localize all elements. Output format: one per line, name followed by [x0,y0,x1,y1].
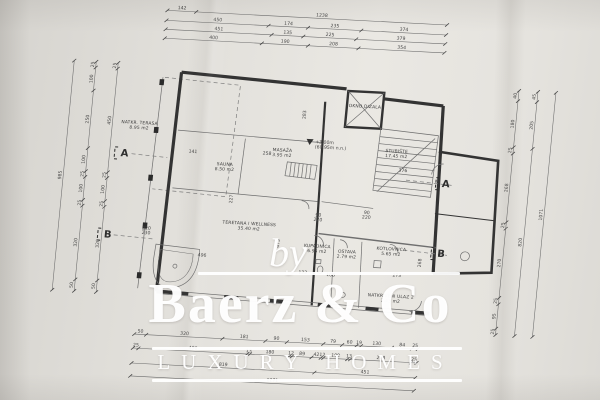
dimension-label: 135 [283,30,292,36]
dimension-label: 13 [346,353,352,359]
interior-dimension: 475 [275,239,282,248]
interior-dimension: 376 [398,168,407,174]
dimension-chain-bottom-3 [131,363,415,378]
room-label: NATKRIVENI ULAZ 23.43 m2 [367,292,414,305]
dimension-label: 25 [101,172,108,178]
dimension-label: 100 [88,74,95,83]
dimension-label: 174 [284,21,293,27]
interior-dimension: 90220 [362,210,372,221]
interior-dimension: 227 [228,194,235,203]
dimension-label: 379 [396,36,405,42]
dimension-label: 25 [411,357,417,363]
dimension-label: 25 [493,298,500,304]
dimension-label: 1271 [266,377,278,384]
dimension-label: 100 [78,184,85,193]
dimension-label: 25 [79,171,86,177]
section-marker-a: A [441,179,450,190]
dimension-label: 400 [209,35,218,41]
interior-dimension: 141 [188,149,197,155]
dimension-label: 50 [137,328,143,334]
dimension-label: 90 [273,336,279,342]
dimension-label: 820 [517,238,524,247]
floorplan-drawing: 1421238450174235374451135225379400190208… [0,0,600,400]
section-marker-bracket [114,147,118,159]
doors [292,157,444,313]
dimension-label: 25 [99,201,106,207]
dimension-label: 25 [133,342,139,348]
dimension-label: 25 [507,147,514,153]
dimension-label: 180 [510,119,517,128]
massage-bench [285,162,317,180]
interior-dimension: 132 [298,270,307,276]
section-marker-b: B [103,229,112,240]
elevation-label: +3.00m(60.95m n.n.) [315,139,348,152]
room-label: MASAŽA3.95 m2 [272,145,293,159]
dimension-label: 354 [397,45,406,51]
dimension-label: 190 [280,39,289,45]
dimension-label: 45 [531,94,538,100]
room-label: TERETANA I WELLNESS35.40 m2 [221,220,277,234]
section-marker-b: B [437,249,446,260]
dimension-label: 40 [512,93,519,99]
interior-dimension: 268 [417,258,424,267]
room-label: OKNO DIZALA [348,103,381,111]
dimension-label: 496 [188,345,197,351]
section-marker-bracket [97,228,101,240]
dimension-label: 142 [177,5,186,11]
dimension-label: 225 [325,32,334,38]
dimension-label: 180 [265,349,274,355]
dimension-label: 985 [57,170,64,179]
dimension-label: 50 [91,283,98,289]
dimension-label: 450 [213,17,222,23]
dimension-label: 60 [346,339,352,345]
dimension-label: 205 [529,121,536,130]
dimension-label: 19 [356,340,362,346]
dimension-label: 89 [299,351,305,357]
section-marker-a: A [120,148,129,159]
dimension-label: 100 [81,155,88,164]
dimension-label: 235 [330,23,339,29]
dimension-label: 268 [503,183,510,192]
room-label: KUPAONICA6.95 m2 [303,243,331,255]
dimension-label: 819 [219,362,228,368]
dimension-label: 79 [330,339,336,345]
dimension-label: 451 [360,369,369,375]
staircase [373,129,439,198]
room-label: STUBIŠTE17.45 m2 [385,147,409,160]
dimension-label: 1071 [538,209,545,221]
room-label: KOTLOVNICA5.65 m2 [376,246,407,259]
generated-annotations: 1421238450174235374451135225379400190208… [38,0,564,399]
dimension-label: 270 [496,259,503,268]
interior-dimension: 258 [262,151,271,157]
interior-dimension: 108 [326,272,335,278]
dimension-label: 25 [490,329,497,335]
floorplan-photo: 1421238450174235374451135225379400190208… [0,0,600,400]
dimension-label: 13 [246,348,252,354]
dimension-label: 153 [301,337,310,343]
dimension-label: 320 [180,331,189,337]
dimension-label: 25 [90,61,97,67]
room-label: OSTAVA2.79 m2 [336,249,356,261]
room-label: NATKR. TERASA8.95 m2 [121,119,158,132]
dimension-label: 130 [372,341,381,347]
dimension-label: 320 [73,238,80,247]
dimension-label: 1238 [316,12,328,19]
dimension-label: 95 [491,313,498,319]
dimension-label: 451 [214,26,223,32]
dimension-label: 181 [240,334,249,340]
dimension-label: 100 [100,185,107,194]
dimension-label: 12 [288,350,294,356]
dimension-label: 12 [319,352,325,358]
dimension-label: 25 [112,62,119,68]
interior-dimension: 220230 [141,225,151,236]
interior-dimension: 283 [302,110,309,119]
dimension-label: 84 [399,342,405,348]
dimension-label: 374 [399,27,408,33]
dimension-label: 50 [69,282,76,288]
dimension-label: 25 [412,343,418,349]
dimension-label: 109 [331,353,340,359]
dimension-label: 278 [376,355,385,361]
interior-dimension: 496 [197,252,206,258]
terrace-outline [152,77,241,197]
room-label: SAUNA8.50 m2 [214,161,234,173]
dimension-label: 450 [106,116,113,125]
dimension-label: 250 [84,115,91,124]
dimension-label: 25 [77,200,84,206]
interior-dimension: 90220 [313,212,323,223]
interior-dimension: 273 [392,273,401,279]
dimension-chain-bottom-2 [133,348,417,363]
dimension-label: 25 [500,222,507,228]
dimension-label: 208 [329,41,338,47]
